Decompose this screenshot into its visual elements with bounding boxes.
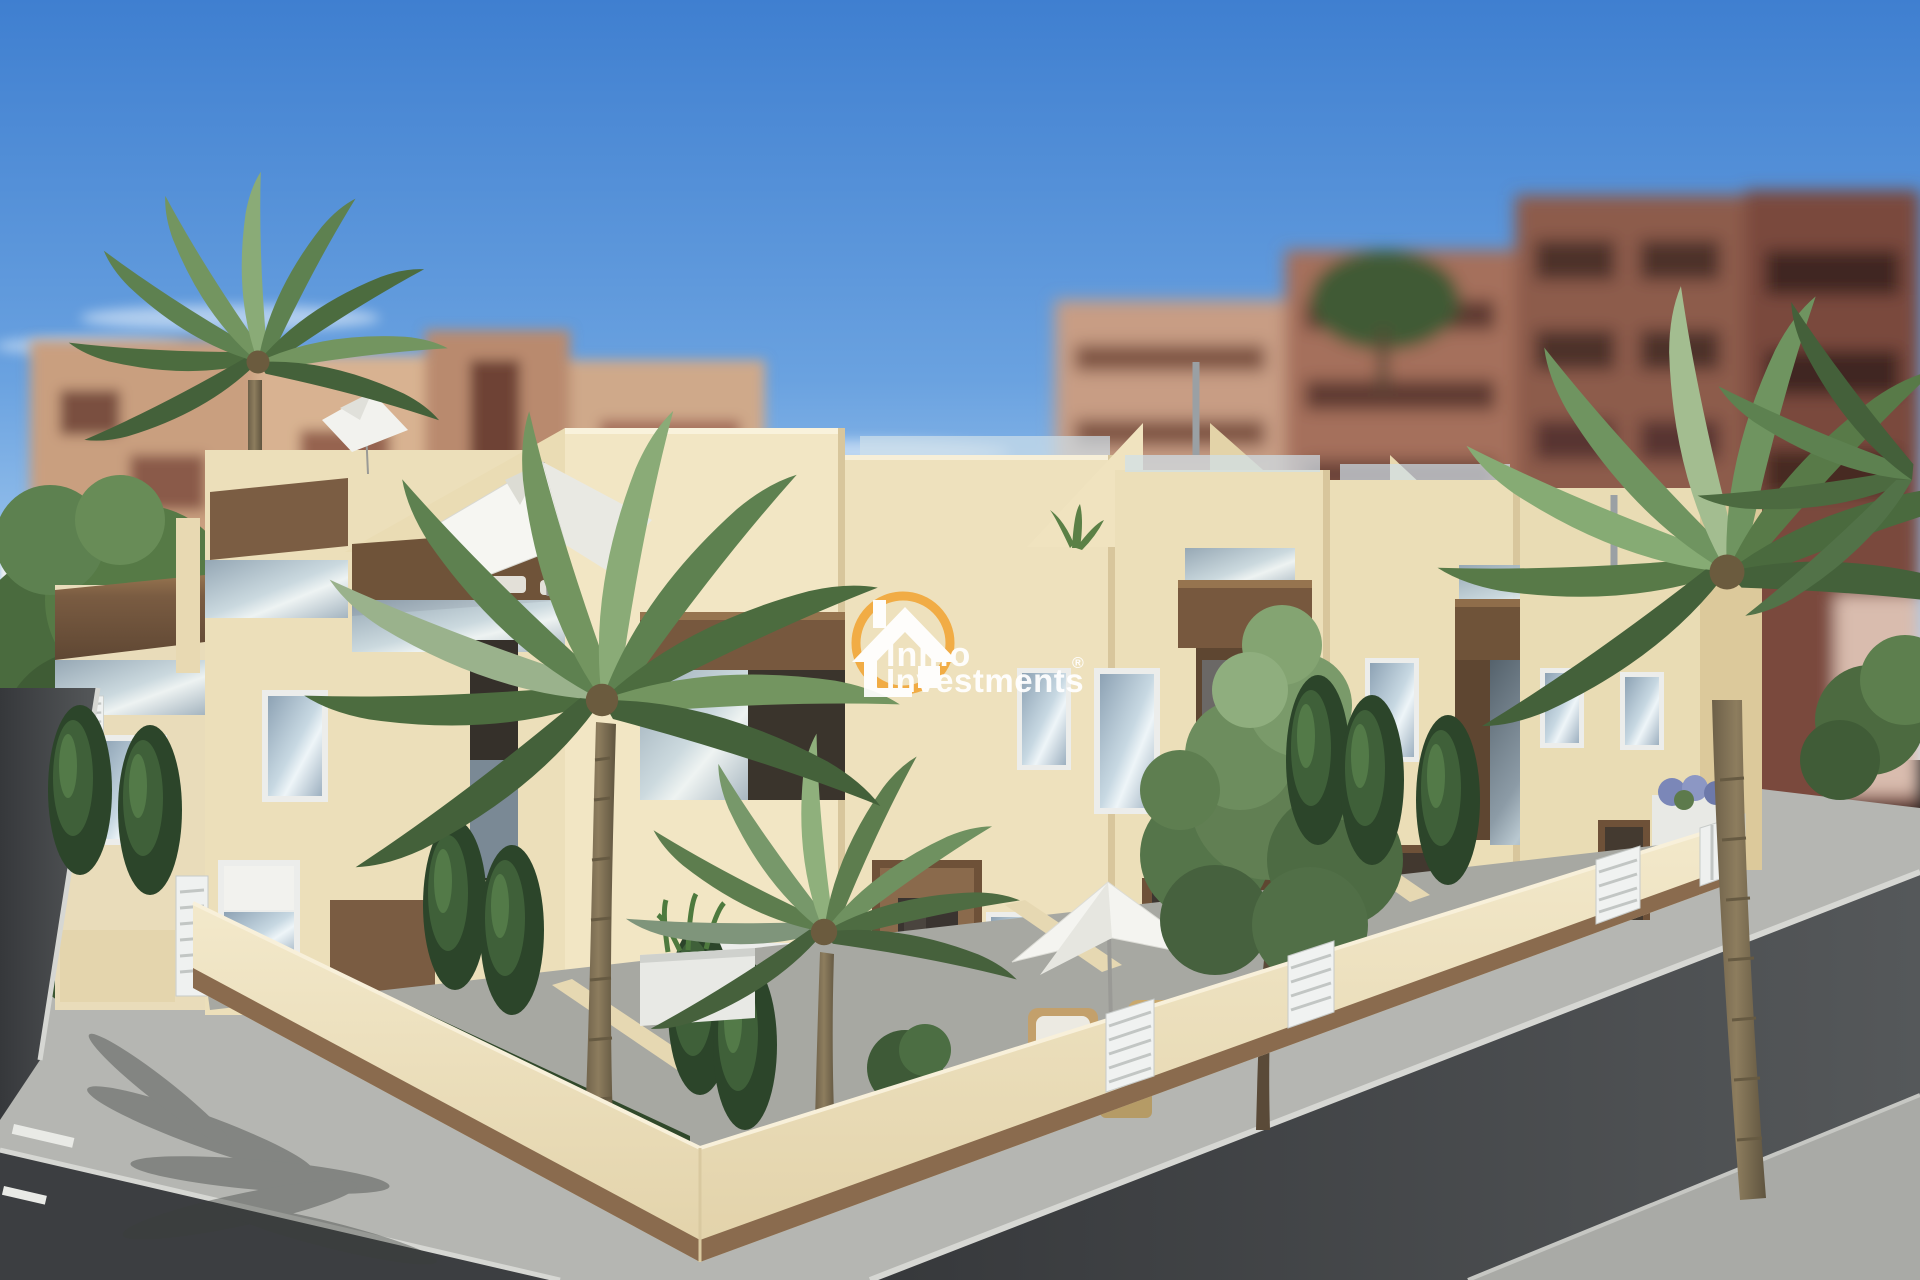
pergola-beam	[210, 478, 348, 560]
rear-garden-wall	[60, 930, 175, 1002]
cypress	[48, 705, 112, 875]
scene: Inmo Investments ®	[0, 0, 1920, 1280]
pergola-pillar	[176, 518, 200, 673]
logo-text-line2: Investments	[886, 662, 1084, 699]
render-canvas: Inmo Investments ®	[0, 0, 1920, 1280]
wall-lattice-panel	[1106, 999, 1154, 1092]
registered-mark: ®	[1072, 655, 1084, 672]
